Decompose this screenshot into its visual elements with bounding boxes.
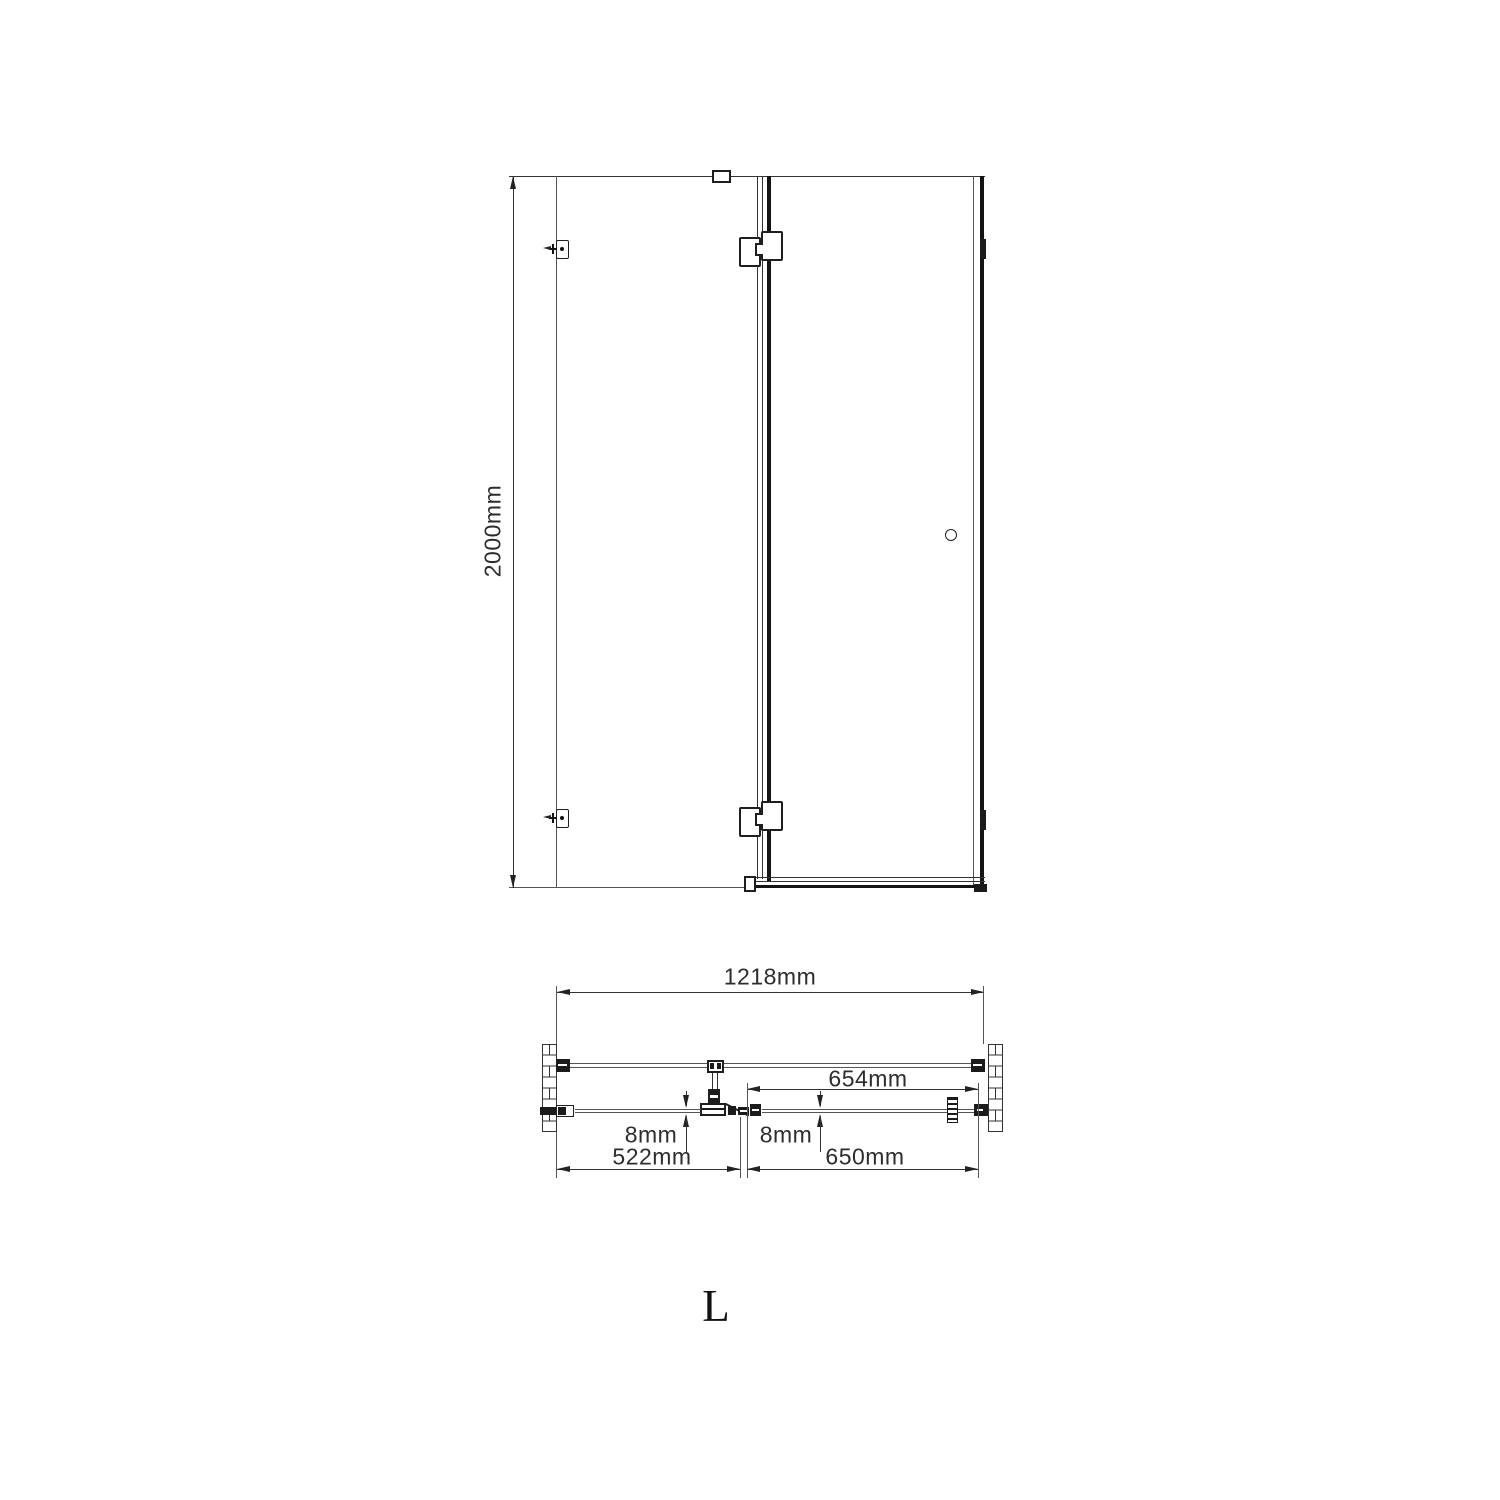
- dimension-arrow-left: [557, 1166, 570, 1172]
- hinge-knuckle: [755, 243, 763, 256]
- overall-width-label: 1218mm: [724, 964, 816, 991]
- threshold-line-1: [748, 877, 985, 878]
- door-glass-line-2: [762, 1112, 976, 1113]
- elevation-door-right-edge-inner: [973, 176, 974, 888]
- dimension-line: [557, 1169, 740, 1170]
- right-wall-brick-hatch: [988, 1044, 1003, 1132]
- support-post-line-1: [712, 1073, 713, 1090]
- elevation-hinge-stile: [767, 176, 771, 882]
- fixed-glass-line-2: [575, 1112, 701, 1113]
- threshold-sill: [745, 885, 987, 888]
- drawing-canvas: 2000mm 1218mm: [0, 0, 1500, 1500]
- elevation-fixed-panel-bottom-edge: [509, 887, 745, 888]
- wall-bracket-screw: [560, 816, 564, 820]
- dimension-line: [557, 992, 984, 993]
- hinge-block-1: [728, 1106, 736, 1115]
- threshold-line-2: [750, 881, 985, 882]
- height-dimension-label: 2000mm: [480, 485, 507, 577]
- threshold-end-cap-right: [974, 884, 987, 892]
- extension-line-right: [983, 986, 984, 1044]
- elevation-fixed-panel-left-edge: [556, 176, 557, 888]
- dimension-arrow-right: [727, 1166, 740, 1172]
- door-glass-thickness-label: 8mm: [760, 1122, 813, 1149]
- callout-line-bottom: [820, 1116, 821, 1152]
- door-width-label: 650mm: [825, 1144, 904, 1171]
- callout-arrow-down: [817, 1095, 823, 1108]
- dimension-arrow-right: [965, 1086, 978, 1092]
- wall-bracket-pin-tip: [543, 246, 551, 250]
- extension-line-right: [740, 1117, 741, 1178]
- support-bar-wall-bracket-right-detail: [973, 1064, 982, 1066]
- center-clamp-bolt-left: [710, 1063, 714, 1069]
- hinge-plate-right: [761, 801, 783, 831]
- support-bar-line-1: [570, 1063, 972, 1064]
- dimension-arrow-down: [510, 875, 516, 888]
- dimension-arrow-up: [510, 176, 516, 189]
- dimension-arrow-left: [747, 1086, 760, 1092]
- fixed-glass-wall-profile: [540, 1107, 556, 1115]
- dimension-arrow-left: [747, 1166, 760, 1172]
- dimension-arrow-right: [965, 1166, 978, 1172]
- elevation-top-edge: [509, 176, 985, 177]
- hinge-plate-right: [761, 231, 783, 261]
- wall-bracket-screw: [560, 247, 564, 251]
- turnbuckle-bolt-top: [710, 1091, 718, 1095]
- support-post-line-2: [717, 1073, 718, 1090]
- wall-bracket-pin-head: [552, 813, 554, 823]
- support-bar-wall-bracket-left-detail: [558, 1064, 567, 1066]
- dimension-line: [513, 176, 514, 888]
- fixed-glass-line-1: [575, 1109, 701, 1110]
- dimension-line: [747, 1169, 978, 1170]
- extension-line-right: [978, 1083, 979, 1178]
- elevation-fixed-panel-right-edge: [757, 176, 758, 879]
- wall-bracket-pin-tip: [543, 815, 551, 819]
- door-knob-plan: [947, 1097, 958, 1123]
- elevation-support-bar-clamp: [712, 170, 731, 183]
- dimension-arrow-left: [557, 989, 570, 995]
- extension-line-left: [747, 1083, 748, 1178]
- callout-arrow-down: [683, 1095, 689, 1108]
- center-clamp-bolt-right: [717, 1063, 721, 1069]
- fixed-panel-width-label: 522mm: [612, 1144, 691, 1171]
- support-bar-line-2: [570, 1067, 972, 1068]
- elevation-door-right-stile: [980, 176, 984, 884]
- glass-clamp-detail: [702, 1108, 724, 1110]
- elevation-door-seal-clamp-bottom: [980, 810, 986, 830]
- handing-label: L: [702, 1280, 730, 1332]
- fixed-glass-wall-bracket-bolt: [558, 1107, 566, 1115]
- hinge-block-3-detail: [752, 1109, 759, 1111]
- dimension-line: [747, 1089, 978, 1090]
- door-knob: [945, 529, 957, 541]
- elevation-door-seal-clamp-top: [980, 239, 986, 259]
- threshold-end-cap-left: [744, 876, 756, 892]
- turnbuckle-bolt-bottom: [710, 1098, 718, 1101]
- hinge-block-2-detail: [740, 1110, 747, 1112]
- left-wall-brick-hatch: [542, 1044, 557, 1132]
- wall-bracket-pin-head: [552, 244, 554, 254]
- elevation-door-hinge-edge: [762, 176, 763, 879]
- hinge-knuckle: [755, 813, 763, 826]
- door-glass-line-1: [762, 1109, 976, 1110]
